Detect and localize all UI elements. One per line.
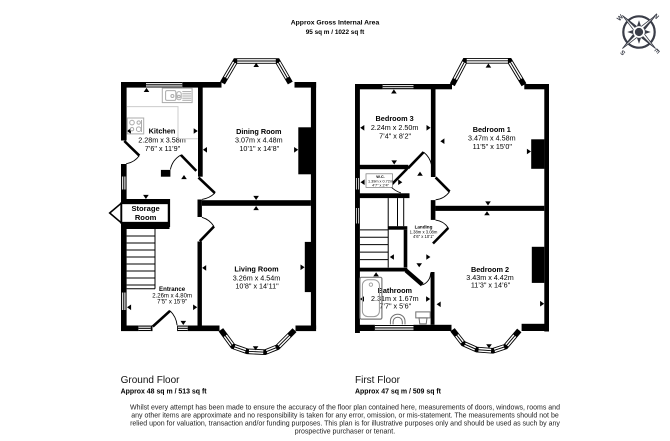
svg-text:Bedroom 3: Bedroom 3 — [376, 114, 414, 123]
svg-text:Storage: Storage — [131, 204, 159, 213]
svg-text:Entrance: Entrance — [159, 286, 186, 293]
svg-text:relied upon for valuation, tra: relied upon for valuation, transaction a… — [130, 420, 560, 427]
svg-text:7’4" x 8’2": 7’4" x 8’2" — [379, 131, 411, 140]
svg-text:W.C.: W.C. — [376, 174, 384, 179]
svg-text:Bedroom 1: Bedroom 1 — [473, 125, 511, 134]
svg-text:Ground Floor: Ground Floor — [121, 375, 181, 386]
svg-text:95 sq m / 1022 sq ft: 95 sq m / 1022 sq ft — [306, 29, 365, 36]
svg-text:11’3" x 14’6": 11’3" x 14’6" — [471, 281, 511, 290]
svg-text:Living Room: Living Room — [234, 264, 279, 273]
svg-text:Whilst every attempt has been: Whilst every attempt has been made to en… — [130, 404, 560, 411]
svg-text:Approx 47 sq m / 509 sq ft: Approx 47 sq m / 509 sq ft — [355, 388, 442, 395]
svg-text:First Floor: First Floor — [355, 375, 401, 386]
svg-text:Approx 48 sq m / 513 sq ft: Approx 48 sq m / 513 sq ft — [121, 388, 208, 395]
svg-text:any other items are approximat: any other items are approximate and no r… — [131, 412, 559, 419]
svg-text:7’7" x 5’6": 7’7" x 5’6" — [379, 302, 411, 311]
svg-text:4’7" x 2’4": 4’7" x 2’4" — [372, 184, 389, 188]
svg-text:11’5" x 15’0": 11’5" x 15’0" — [473, 142, 513, 151]
svg-text:10’1" x 14’8": 10’1" x 14’8" — [239, 144, 279, 153]
svg-text:7’5" x 15’9": 7’5" x 15’9" — [157, 299, 187, 305]
svg-text:Approx Gross Internal Area: Approx Gross Internal Area — [291, 20, 380, 27]
svg-text:7’6" x 11’9": 7’6" x 11’9" — [145, 144, 181, 153]
svg-text:Kitchen: Kitchen — [149, 127, 176, 136]
svg-text:prospective purchaser or tenan: prospective purchaser or tenant. — [295, 428, 395, 435]
svg-text:Room: Room — [135, 213, 157, 222]
svg-text:4’6" x 10’1": 4’6" x 10’1" — [413, 234, 434, 239]
svg-text:10’8" x 14’11": 10’8" x 14’11" — [235, 282, 279, 291]
